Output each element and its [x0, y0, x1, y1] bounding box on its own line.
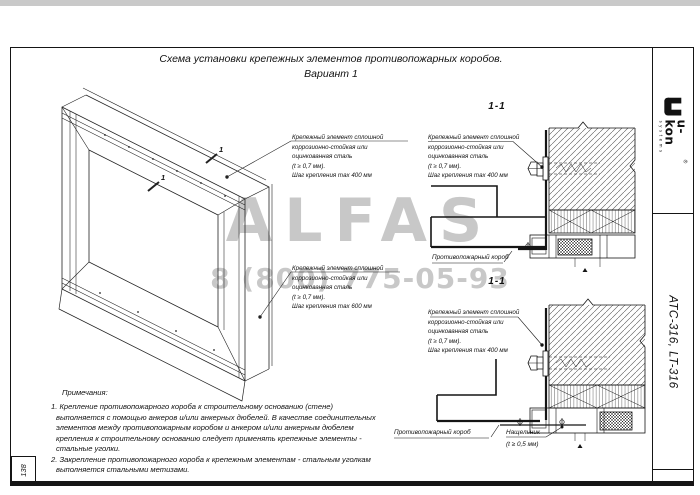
callout-section-top: Крепежный элемент сплошной коррозионно-с… [428, 133, 519, 181]
ukon-logo-sub: systems [659, 120, 663, 154]
iso-cut-number-1: 1 [161, 173, 165, 182]
note-line-6: 2. Закрепление противопожарного короба к… [51, 455, 371, 464]
note-line-7: выполняется стальными метизами. [56, 465, 190, 474]
callout-iso-bottom: Крепежный элемент сплошной коррозионно-с… [292, 264, 383, 312]
note-line-1: 1. Крепление противопожарного короба к с… [51, 402, 333, 411]
duct-label-top: Противопожарный короб [432, 254, 509, 261]
registered-mark: ® [682, 159, 688, 163]
doc-number: АТС-316, LT-316 [667, 295, 679, 388]
ukon-logo: u-kon systems ® [653, 48, 693, 212]
note-line-5: стальные уголки. [56, 444, 120, 453]
ukon-logo-word: u-kon [664, 119, 688, 155]
note-line-4: крепления к строительному основанию след… [56, 434, 362, 443]
note-line-3: элементов между противопожарным коробом … [56, 423, 354, 432]
note-line-2: выполняется с помощью анкеров и/или анке… [56, 413, 376, 422]
variant-title: Вариант 1 [10, 68, 652, 80]
sheet-number: 138 [19, 464, 28, 477]
flashing-spec: (t ≥ 0,5 мм) [506, 441, 539, 448]
notes-heading: Примечания: [62, 388, 108, 397]
sheet-number-box: 138 [11, 456, 36, 484]
callout-iso-top: Крепежный элемент сплошной коррозионно-с… [292, 133, 383, 181]
callout-section-bottom: Крепежный элемент сплошной коррозионно-с… [428, 308, 519, 356]
duct-label-bottom: Противопожарный короб [394, 429, 471, 436]
section-bottom-label: 1-1 [475, 276, 519, 287]
iso-cut-number-2: 1 [219, 145, 223, 154]
flashing-label: Нащельник [506, 429, 540, 436]
drawing-sheet: ALFAS 8 (800) 775-05-93 [0, 0, 700, 495]
ukon-logo-mark [663, 97, 683, 115]
page-title: Схема установки крепежных элементов прот… [10, 53, 652, 65]
iso-cut-mark-a [148, 182, 159, 191]
section-top-label: 1-1 [475, 101, 519, 112]
iso-cut-mark-b [206, 154, 217, 163]
doc-number-cell: АТС-316, LT-316 [653, 214, 693, 469]
